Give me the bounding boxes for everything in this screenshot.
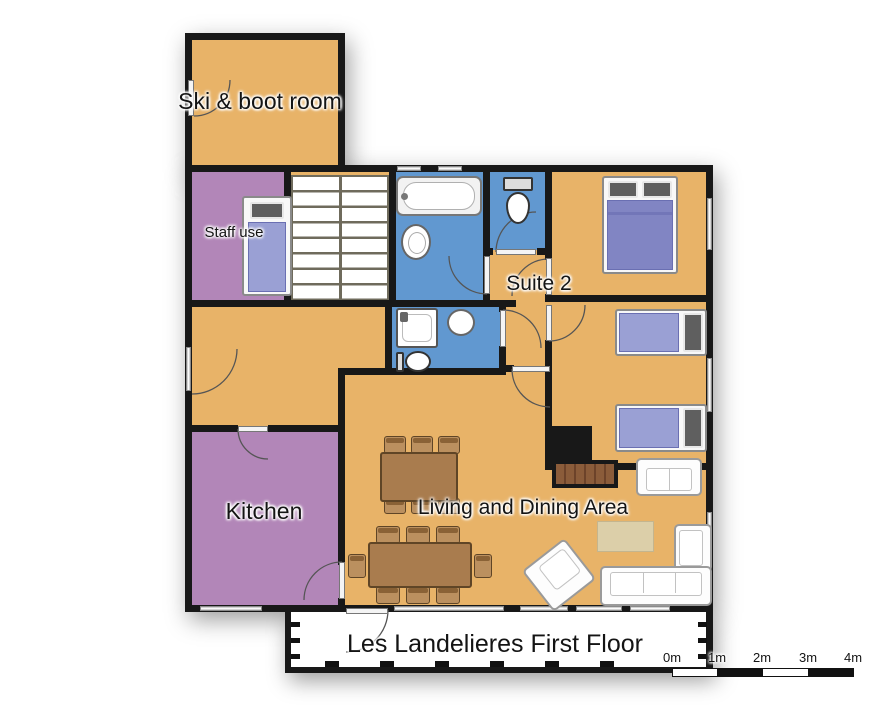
door-kitchen-top: [238, 426, 268, 432]
room-label-kitchen: Kitchen: [214, 498, 314, 525]
toilet-icon: [405, 351, 431, 372]
door-twin-bedroom: [546, 305, 552, 341]
wall: [338, 598, 345, 612]
scale-label-2m: 2m: [747, 650, 777, 665]
pillow-icon: [250, 202, 284, 219]
faucet-icon: [401, 193, 408, 200]
pillow-icon: [608, 181, 638, 198]
railing-tick: [600, 661, 614, 667]
fireplace-icon: [552, 460, 618, 488]
sink-icon: [401, 224, 431, 260]
scale-bar-segment: [672, 668, 718, 677]
room-label-suite-2: Suite 2: [493, 272, 585, 296]
room-label-ski-boot: Ski & boot room: [150, 88, 370, 115]
floor-plan-page: Ski & boot room Staff use Suite 2 Kitche…: [0, 0, 894, 706]
door-wc: [496, 249, 536, 255]
sofa-seat: [610, 572, 702, 596]
railing-tick: [291, 638, 300, 643]
dining-table-icon: [380, 452, 458, 502]
pillow-icon: [683, 408, 703, 448]
chair-icon: [474, 554, 492, 578]
scale-bar-segment: [762, 668, 809, 677]
door-shower-room: [500, 310, 506, 347]
window: [186, 347, 191, 391]
armchair-cushion: [538, 548, 582, 591]
sofa-icon: [636, 458, 702, 496]
duvet: [607, 200, 673, 270]
window: [438, 166, 462, 171]
bathtub-basin: [403, 182, 475, 210]
scale-bar-segment: [808, 668, 854, 677]
shower-head-icon: [400, 312, 408, 322]
railing-tick: [545, 661, 559, 667]
chair-icon: [436, 586, 460, 604]
door-balcony: [346, 608, 388, 614]
scale-bar-segment: [717, 668, 763, 677]
sofa-cushion-divider: [669, 469, 670, 490]
chair-icon: [376, 586, 400, 604]
sofa-cushion-divider: [675, 573, 676, 593]
railing-tick: [698, 638, 707, 643]
window: [520, 606, 568, 611]
wall: [338, 368, 392, 375]
railing-tick: [325, 661, 339, 667]
plan-title: Les Landelieres First Floor: [332, 630, 658, 659]
window: [576, 606, 622, 611]
wall: [338, 425, 345, 565]
window: [707, 198, 712, 250]
scale-label-3m: 3m: [793, 650, 823, 665]
wall: [545, 172, 552, 252]
corner-sofa-icon: [674, 524, 712, 572]
wall: [483, 248, 493, 255]
sofa-cushion-divider: [643, 573, 644, 593]
railing-tick: [291, 622, 300, 627]
staircase-icon: [342, 177, 387, 300]
sofa-seat: [679, 530, 703, 566]
chair-icon: [406, 586, 430, 604]
railing-tick: [435, 661, 449, 667]
wall: [185, 300, 516, 307]
rug-icon: [597, 521, 654, 552]
room-label-staff: Staff use: [194, 224, 274, 241]
door-corridor-living: [512, 366, 550, 372]
wall: [545, 295, 713, 302]
duvet: [619, 408, 679, 448]
scale-label-4m: 4m: [838, 650, 868, 665]
corner-sofa-icon: [600, 566, 712, 606]
scale-label-0m: 0m: [657, 650, 687, 665]
toilet-cistern: [503, 177, 533, 191]
wall: [185, 425, 238, 432]
window: [707, 358, 712, 412]
dining-table-icon: [368, 542, 472, 588]
window: [397, 166, 421, 171]
railing-tick: [291, 654, 300, 659]
door-bathroom: [484, 256, 490, 294]
bathtub-icon: [396, 176, 482, 216]
window: [394, 606, 504, 611]
sink-icon: [447, 309, 475, 336]
wall: [268, 425, 345, 432]
wall: [389, 172, 396, 307]
scale-label-1m: 1m: [702, 650, 732, 665]
railing-tick: [380, 661, 394, 667]
window: [200, 606, 262, 611]
duvet: [619, 313, 679, 352]
railing-tick: [490, 661, 504, 667]
pillow-icon: [642, 181, 672, 198]
sink-basin: [408, 232, 426, 254]
railing-tick: [698, 622, 707, 627]
pillow-icon: [683, 313, 703, 352]
wall: [385, 300, 392, 375]
balcony-wall: [285, 667, 712, 673]
shower-icon: [396, 308, 438, 348]
duvet-fold: [607, 212, 673, 215]
room-label-living-dining: Living and Dining Area: [392, 496, 654, 520]
toilet-cistern: [396, 352, 404, 372]
wall: [185, 33, 345, 40]
staircase-icon: [293, 177, 339, 300]
wall: [338, 368, 345, 432]
chair-icon: [348, 554, 366, 578]
door-kitchen-side: [339, 562, 345, 599]
window: [630, 606, 670, 611]
